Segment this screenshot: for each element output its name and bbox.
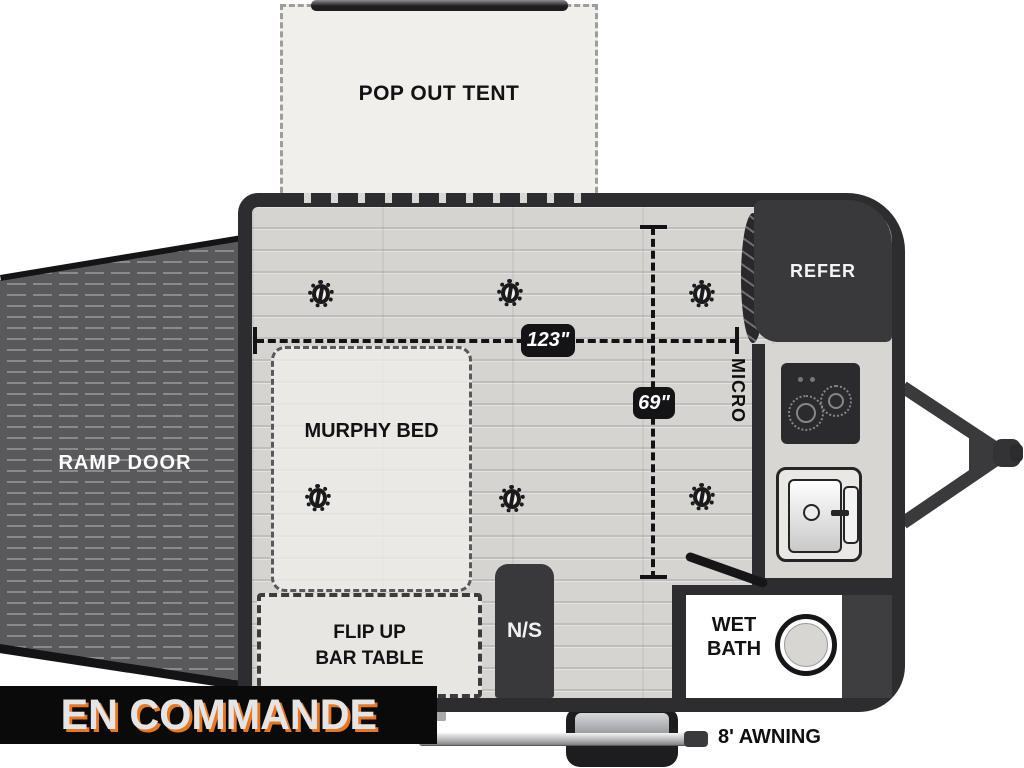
dimension-length-cap-left [253,327,257,354]
refrigerator-block: REFER [754,200,892,342]
nightstand-block: N/S [495,564,554,698]
pop-out-tent-label: POP OUT TENT [280,82,598,106]
floorplan-diagram: POP OUT TENT RAMP DOOR REFER MICRO [0,0,1024,768]
nightstand-label: N/S [507,619,542,643]
wet-bath-wall-top [672,585,892,595]
floor-tiedown-icon [303,482,333,514]
dimension-width-cap-bottom [640,575,667,579]
dimension-length-badge: 123" [521,324,575,357]
wet-bath-cabinet [842,595,892,698]
murphy-bed-area [271,346,472,592]
microwave-label: MICRO [727,358,748,423]
refrigerator-label: REFER [790,261,856,282]
dimension-width-cap-top [640,225,667,229]
floor-tiedown-icon [497,483,527,515]
awning-label: 8' AWNING [718,726,858,749]
floor-tiedown-icon [687,481,717,513]
dimension-length-line [256,339,738,343]
murphy-bed-label: MURPHY BED [271,420,472,443]
ramp-door-label: RAMP DOOR [30,452,220,475]
wet-bath-wall-left [672,585,686,698]
sink-icon [776,467,862,562]
floor-tiedown-icon [306,278,336,310]
awning-rod-endcap [684,731,708,747]
awning-rod [419,733,707,745]
floor-tiedown-icon [495,277,525,309]
floor-tiedown-icon [687,278,717,310]
flip-up-bar-table-label: FLIP UP BAR TABLE [257,620,482,672]
dimension-width-badge: 69" [633,387,675,419]
tent-opening-ticks [284,193,598,203]
stove-icon [781,363,860,444]
status-banner: EN COMMANDE [0,686,437,744]
status-banner-label: EN COMMANDE [60,691,376,740]
hitch-icon [893,373,1024,543]
tent-top-rail [311,0,568,11]
toilet-icon [775,614,837,676]
wet-bath-label: WET BATH [688,613,780,661]
dimension-length-cap-right [735,327,739,354]
